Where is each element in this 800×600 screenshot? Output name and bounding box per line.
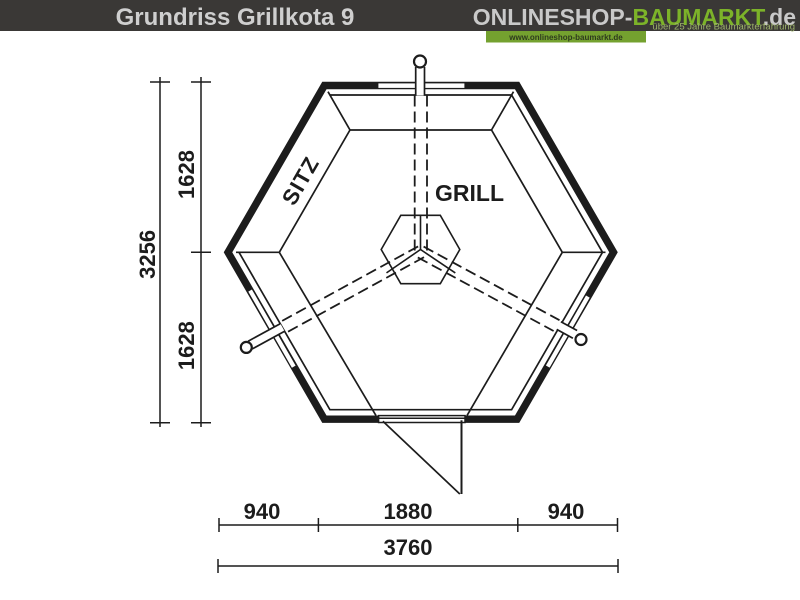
svg-text:1880: 1880: [384, 499, 433, 524]
svg-text:Grundriss Grillkota 9: Grundriss Grillkota 9: [116, 4, 355, 31]
svg-text:940: 940: [244, 499, 281, 524]
svg-text:940: 940: [548, 499, 585, 524]
svg-text:über 25 Jahre Baumarkterfahrun: über 25 Jahre Baumarkterfahrung: [652, 22, 795, 33]
svg-text:www.onlineshop-baumarkt.de: www.onlineshop-baumarkt.de: [508, 33, 623, 42]
svg-text:3760: 3760: [384, 535, 433, 560]
svg-text:3256: 3256: [135, 230, 160, 279]
svg-text:1628: 1628: [174, 150, 199, 199]
svg-text:1628: 1628: [174, 321, 199, 370]
svg-text:GRILL: GRILL: [435, 180, 504, 206]
